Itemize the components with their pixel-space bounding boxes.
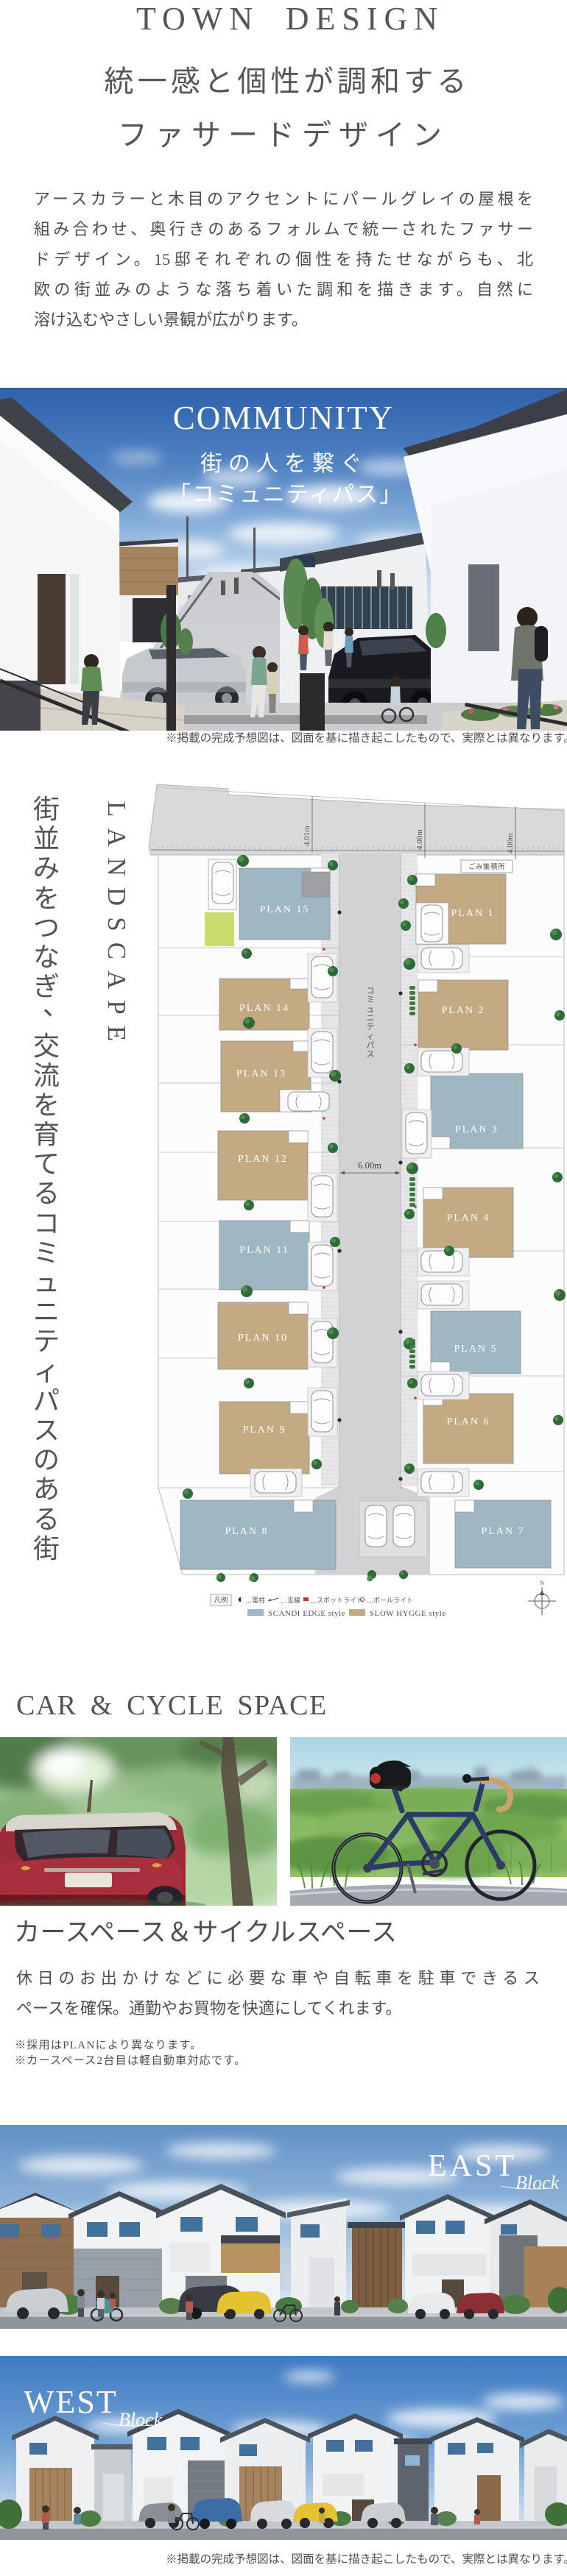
svg-text:PLAN 4: PLAN 4	[446, 1213, 490, 1224]
svg-text:パ: パ	[367, 1040, 375, 1050]
svg-text:…電柱: …電柱	[245, 1596, 265, 1604]
svg-text:PLAN 11: PLAN 11	[239, 1245, 289, 1256]
svg-text:ス: ス	[367, 1050, 375, 1059]
svg-text:コ: コ	[367, 987, 375, 996]
svg-text:6.00m: 6.00m	[358, 1160, 381, 1171]
svg-text:…支線: …支線	[281, 1596, 300, 1604]
svg-text:ニ: ニ	[367, 1014, 375, 1023]
svg-text:凡例: 凡例	[214, 1596, 228, 1605]
svg-text:4.00m: 4.00m	[415, 829, 424, 850]
svg-text:EAST: EAST	[428, 2149, 517, 2183]
svg-text:4.01m: 4.01m	[303, 826, 311, 846]
svg-text:PLAN 2: PLAN 2	[441, 1005, 485, 1016]
svg-text:ュ: ュ	[367, 1005, 375, 1014]
svg-text:SCANDI EDGE style: SCANDI EDGE style	[268, 1609, 345, 1618]
svg-text:PLAN 6: PLAN 6	[446, 1416, 490, 1427]
svg-text:PLAN 3: PLAN 3	[455, 1124, 499, 1135]
svg-text:…スポットライト: …スポットライト	[310, 1597, 363, 1604]
svg-text:ミ: ミ	[367, 996, 375, 1004]
svg-text:Block: Block	[515, 2172, 560, 2193]
svg-text:PLAN 15: PLAN 15	[259, 904, 309, 915]
svg-text:N: N	[540, 1580, 544, 1586]
svg-text:街の人を繋ぐ: 街の人を繋ぐ	[200, 452, 368, 476]
svg-text:PLAN 1: PLAN 1	[451, 908, 494, 919]
svg-text:PLAN 8: PLAN 8	[225, 1526, 268, 1537]
svg-text:ィ: ィ	[367, 1032, 375, 1041]
svg-text:COMMUNITY: COMMUNITY	[173, 400, 395, 436]
svg-text:ごみ集積所: ごみ集積所	[468, 862, 505, 871]
svg-text:…ポールライト: …ポールライト	[367, 1597, 413, 1604]
svg-text:SLOW HYGGE style: SLOW HYGGE style	[370, 1609, 446, 1618]
svg-text:PLAN 14: PLAN 14	[239, 1003, 289, 1014]
svg-text:PLAN 10: PLAN 10	[238, 1333, 288, 1344]
svg-text:WEST: WEST	[24, 2384, 118, 2420]
svg-text:テ: テ	[367, 1023, 375, 1032]
svg-text:PLAN 7: PLAN 7	[481, 1526, 524, 1537]
svg-text:Block: Block	[119, 2409, 163, 2430]
svg-text:PLAN 12: PLAN 12	[238, 1154, 288, 1165]
svg-text:PLAN 5: PLAN 5	[454, 1344, 497, 1355]
svg-text:「コミュニティパス」: 「コミュニティパス」	[169, 483, 403, 507]
svg-text:PLAN 13: PLAN 13	[236, 1068, 286, 1079]
svg-text:PLAN 9: PLAN 9	[242, 1424, 286, 1436]
svg-text:4.00m: 4.00m	[506, 833, 515, 854]
